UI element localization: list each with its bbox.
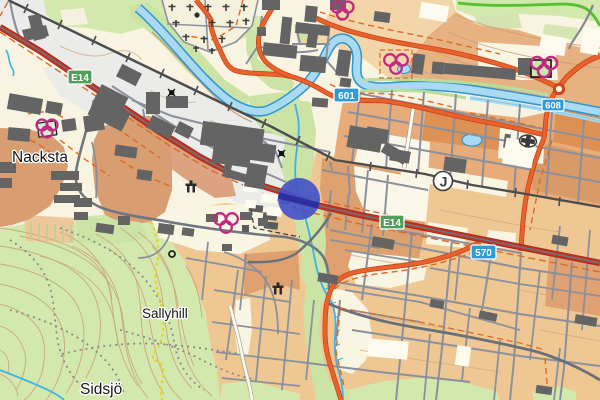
svg-text:J: J (440, 174, 448, 190)
svg-text:Sidsjö: Sidsjö (80, 381, 122, 398)
svg-text:E14: E14 (71, 73, 89, 84)
svg-text:E14: E14 (383, 218, 401, 229)
svg-text:570: 570 (475, 248, 492, 259)
svg-text:608: 608 (545, 101, 561, 112)
svg-text:601: 601 (338, 91, 355, 102)
svg-text:Nacksta: Nacksta (12, 149, 68, 166)
svg-text:Sallyhill: Sallyhill (142, 306, 188, 321)
